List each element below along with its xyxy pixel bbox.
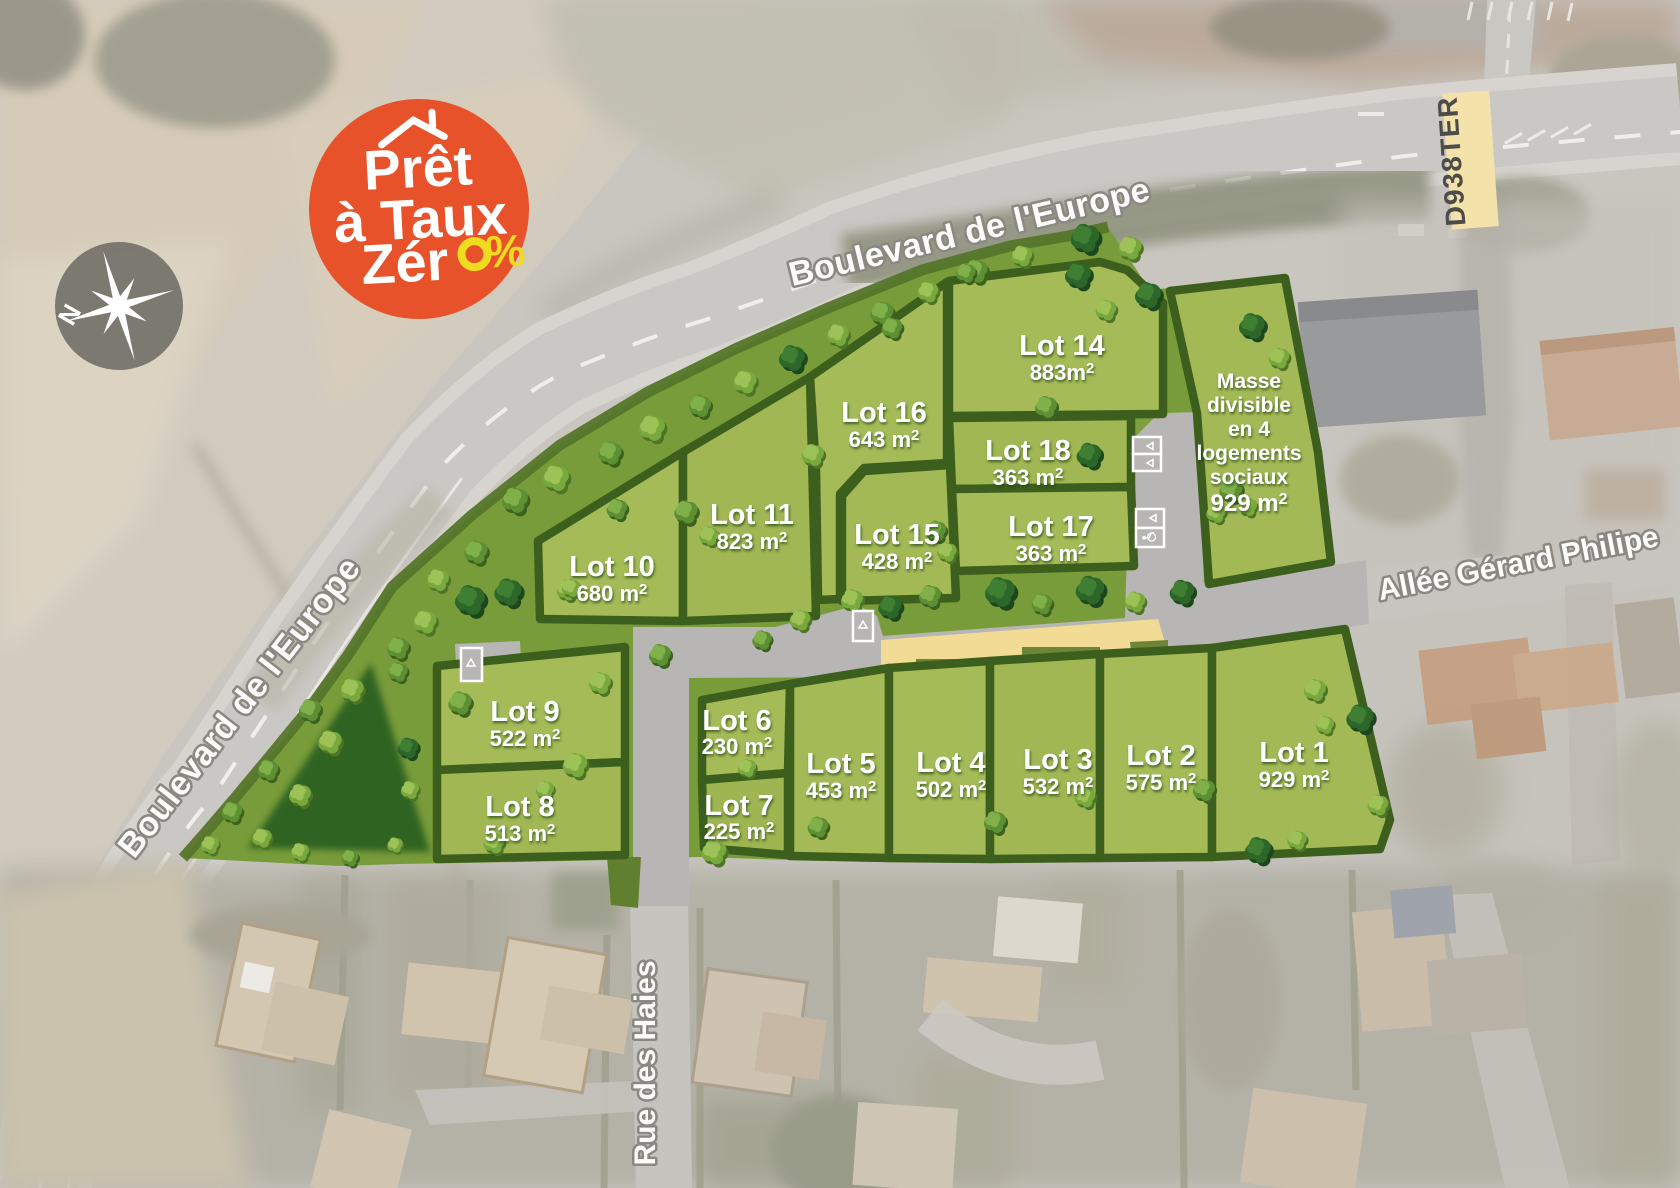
svg-text:Lot 14: Lot 14: [1019, 330, 1104, 362]
svg-text:Lot 15: Lot 15: [854, 519, 939, 551]
svg-text:Lot 9: Lot 9: [490, 696, 559, 728]
svg-text:Lot 10: Lot 10: [569, 551, 654, 583]
svg-text:363 m2: 363 m2: [993, 465, 1064, 490]
svg-text:Lot 6: Lot 6: [702, 705, 771, 737]
svg-text:453 m2: 453 m2: [806, 778, 877, 803]
svg-text:883m2: 883m2: [1030, 360, 1095, 385]
svg-text:513 m2: 513 m2: [485, 821, 556, 846]
svg-text:428 m2: 428 m2: [862, 549, 933, 574]
svg-text:Lot 8: Lot 8: [485, 791, 554, 823]
svg-text:680 m2: 680 m2: [577, 581, 648, 606]
svg-text:363 m2: 363 m2: [1016, 541, 1087, 566]
svg-text:230 m2: 230 m2: [702, 734, 773, 759]
svg-text:643 m2: 643 m2: [849, 427, 920, 452]
svg-text:en 4: en 4: [1228, 418, 1270, 441]
svg-text:Lot 4: Lot 4: [916, 747, 985, 779]
svg-text:logements: logements: [1196, 442, 1301, 465]
svg-text:Rue des Haies: Rue des Haies: [629, 960, 662, 1165]
svg-text:929 m2: 929 m2: [1211, 490, 1288, 517]
svg-text:575 m2: 575 m2: [1126, 770, 1197, 795]
svg-text:Lot 11: Lot 11: [710, 499, 794, 531]
svg-text:823 m2: 823 m2: [717, 529, 788, 554]
svg-text:Lot 1: Lot 1: [1259, 737, 1328, 769]
svg-text:929 m2: 929 m2: [1259, 767, 1330, 792]
svg-text:divisible: divisible: [1207, 394, 1291, 417]
svg-text:Lot 2: Lot 2: [1126, 740, 1195, 772]
svg-text:Lot 16: Lot 16: [841, 397, 926, 429]
svg-text:532 m2: 532 m2: [1023, 774, 1094, 799]
svg-text:Lot 7: Lot 7: [704, 790, 773, 822]
svg-text:Lot 5: Lot 5: [806, 748, 875, 780]
svg-text:Zér: Zér: [360, 229, 450, 296]
svg-text:Lot 18: Lot 18: [985, 435, 1070, 467]
svg-text:522 m2: 522 m2: [490, 726, 561, 751]
svg-text:Lot 17: Lot 17: [1008, 511, 1093, 543]
svg-text:502 m2: 502 m2: [916, 777, 987, 802]
svg-text:sociaux: sociaux: [1210, 466, 1289, 489]
svg-text:225 m2: 225 m2: [704, 819, 775, 844]
svg-text:%: %: [484, 225, 527, 278]
svg-text:Masse: Masse: [1217, 370, 1281, 393]
svg-text:Lot 3: Lot 3: [1023, 744, 1092, 776]
